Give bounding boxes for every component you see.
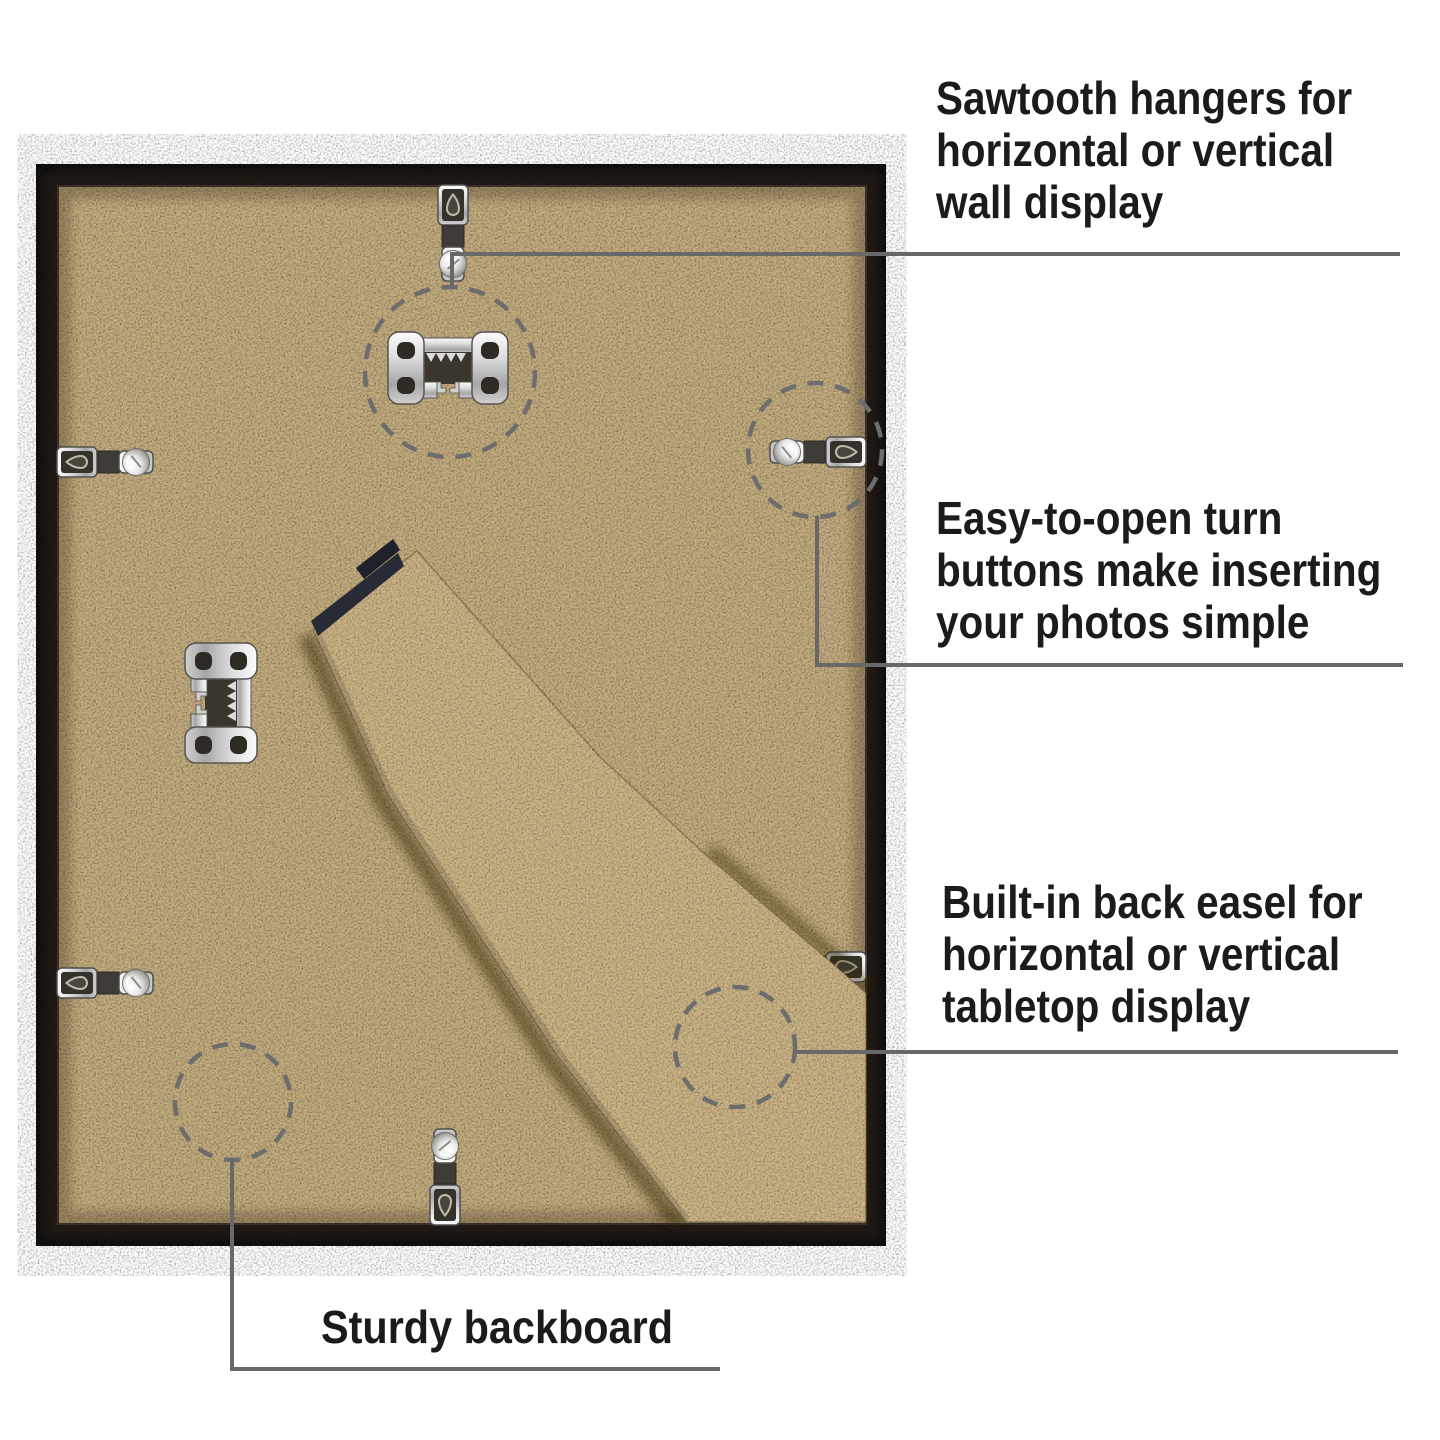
callout-text-backboard: Sturdy backboard — [321, 1301, 673, 1353]
label-line: your photos simple — [936, 596, 1381, 648]
label-line: Sawtooth hangers for — [936, 72, 1352, 124]
label-line: horizontal or vertical — [936, 124, 1352, 176]
turn-button-left-lower — [57, 968, 153, 998]
turn-button-bottom — [430, 1129, 460, 1225]
product-annotation-image: Sawtooth hangers for horizontal or verti… — [0, 0, 1440, 1440]
label-line: wall display — [936, 176, 1352, 228]
label-line: horizontal or vertical — [942, 928, 1363, 980]
callout-text-turn-buttons: Easy-to-open turn buttons make inserting… — [936, 492, 1381, 648]
label-line: Built-in back easel for — [942, 876, 1363, 928]
turn-button-right-upper — [770, 437, 866, 467]
turn-button-left-upper — [57, 447, 153, 477]
label-line: Sturdy backboard — [321, 1301, 673, 1353]
label-line: buttons make inserting — [936, 544, 1381, 596]
callout-text-sawtooth: Sawtooth hangers for horizontal or verti… — [936, 72, 1352, 228]
callout-text-easel: Built-in back easel for horizontal or ve… — [942, 876, 1363, 1032]
label-line: tabletop display — [942, 980, 1363, 1032]
label-line: Easy-to-open turn — [936, 492, 1381, 544]
